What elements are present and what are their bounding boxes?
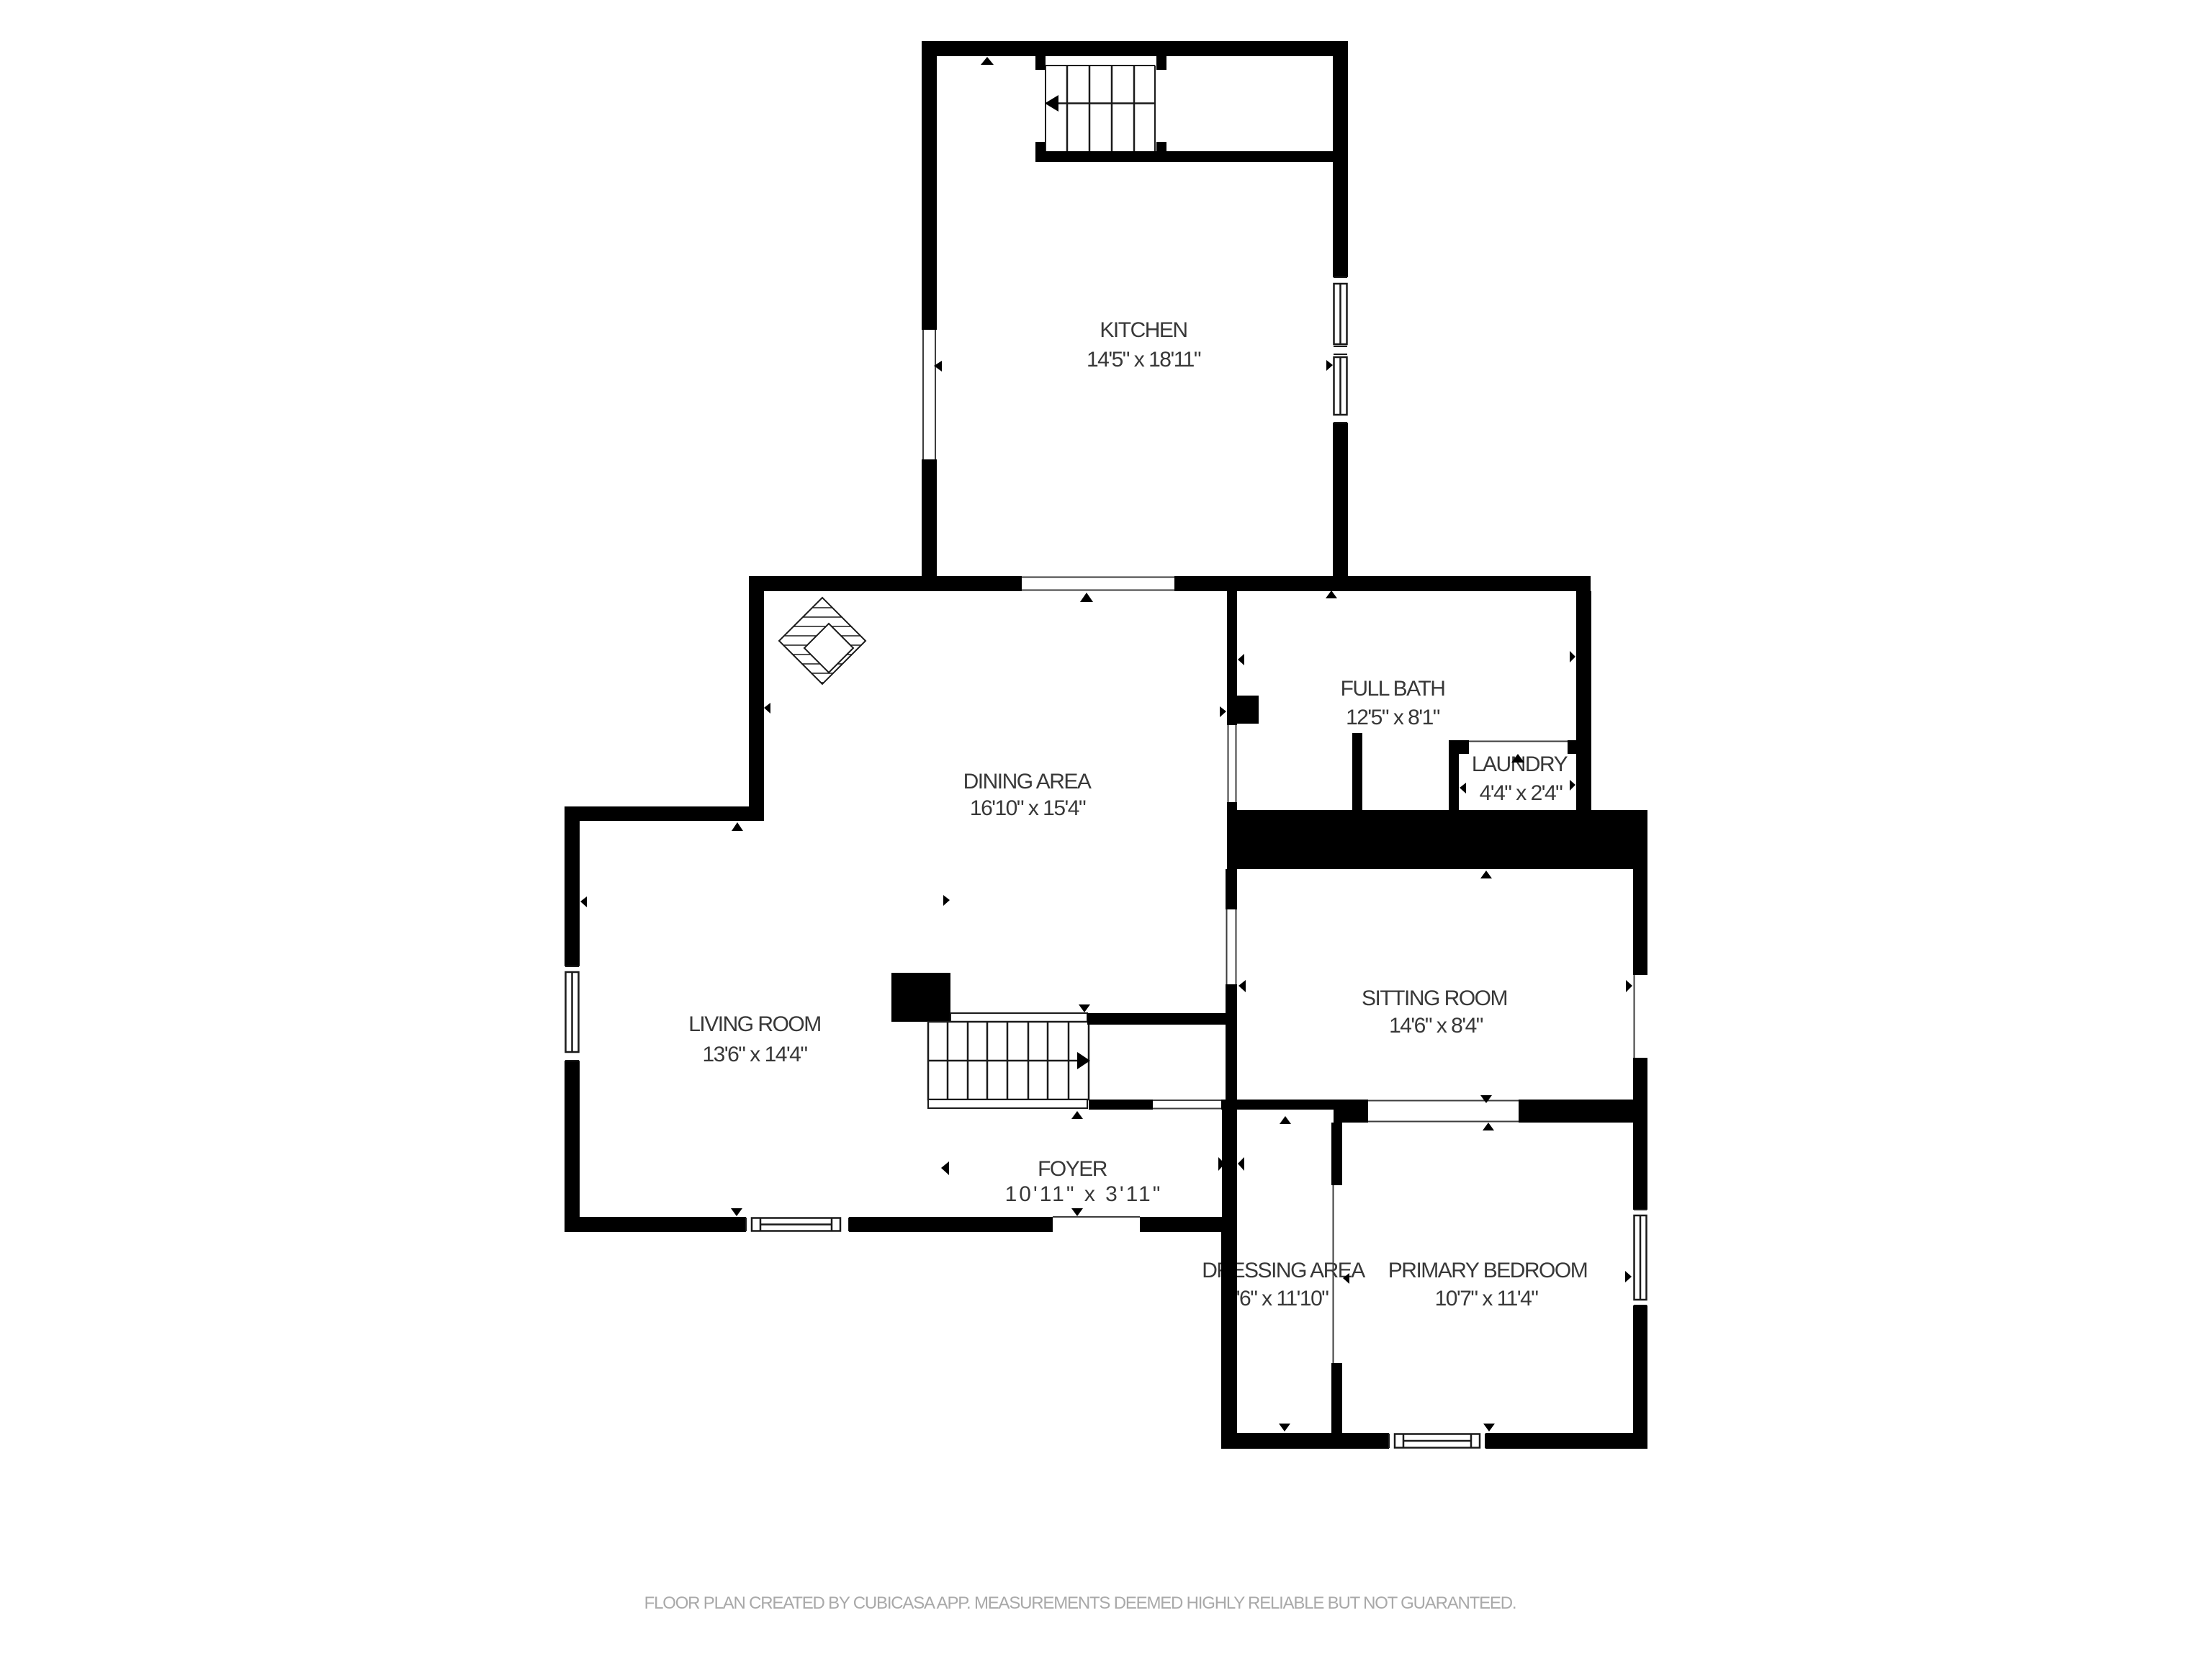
svg-text:16'10" x 15'4": 16'10" x 15'4" — [970, 796, 1086, 820]
svg-text:10'7" x 11'4": 10'7" x 11'4" — [1435, 1287, 1539, 1310]
svg-text:12'5" x 8'1": 12'5" x 8'1" — [1346, 706, 1440, 729]
svg-text:FOYER: FOYER — [1038, 1157, 1107, 1181]
svg-text:FULL BATH: FULL BATH — [1341, 677, 1445, 701]
svg-text:SITTING ROOM: SITTING ROOM — [1362, 986, 1507, 1010]
svg-text:5'6" x 11'10": 5'6" x 11'10" — [1226, 1287, 1329, 1310]
svg-text:KITCHEN: KITCHEN — [1100, 318, 1187, 342]
svg-text:FLOOR PLAN CREATED BY CUBICASA: FLOOR PLAN CREATED BY CUBICASA APP. MEAS… — [644, 1593, 1516, 1613]
svg-text:LAUNDRY: LAUNDRY — [1472, 752, 1568, 776]
svg-text:14'5" x 18'11": 14'5" x 18'11" — [1087, 348, 1201, 372]
svg-text:4'4" x 2'4": 4'4" x 2'4" — [1480, 781, 1563, 805]
svg-text:LIVING ROOM: LIVING ROOM — [688, 1012, 821, 1036]
svg-text:10'11" x 3'11": 10'11" x 3'11" — [1005, 1182, 1163, 1206]
svg-text:DINING AREA: DINING AREA — [963, 770, 1092, 793]
svg-text:PRIMARY BEDROOM: PRIMARY BEDROOM — [1388, 1259, 1587, 1282]
svg-text:14'6" x 8'4": 14'6" x 8'4" — [1389, 1014, 1483, 1038]
svg-text:13'6" x 14'4": 13'6" x 14'4" — [702, 1043, 807, 1066]
